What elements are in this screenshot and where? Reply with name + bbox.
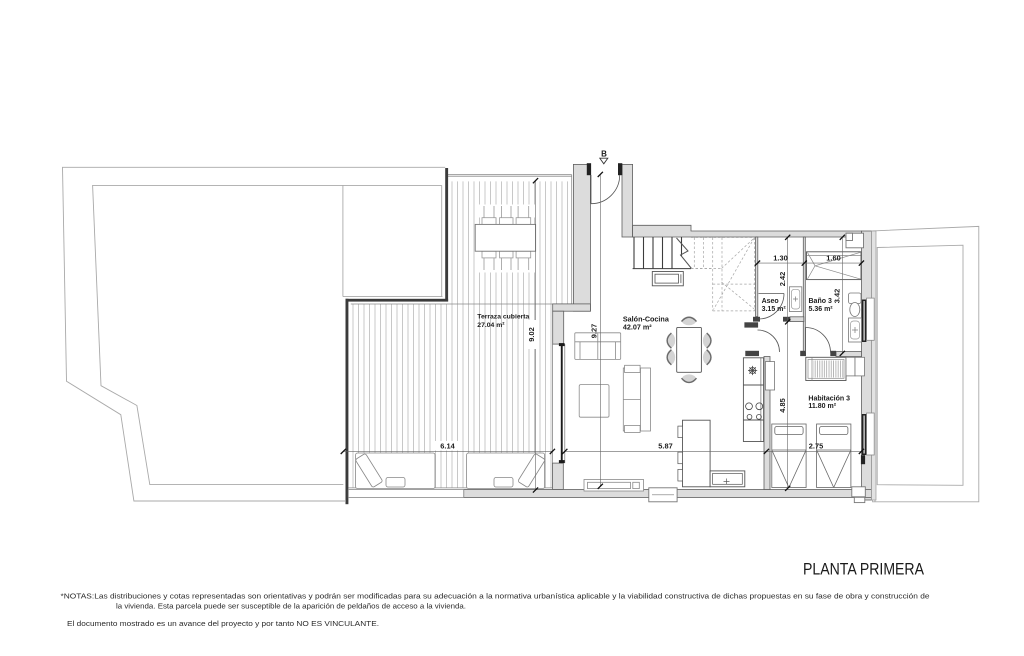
svg-text:9.27: 9.27: [590, 324, 599, 338]
svg-text:3.42: 3.42: [832, 289, 841, 303]
svg-text:*NOTAS:Las distribuciones y co: *NOTAS:Las distribuciones y cotas repres…: [61, 594, 930, 601]
svg-text:2.42: 2.42: [778, 272, 787, 286]
svg-text:9.02: 9.02: [527, 327, 536, 341]
svg-text:5.87: 5.87: [658, 442, 672, 451]
svg-text:El documento mostrado es un av: El documento mostrado es un avance del p…: [67, 621, 379, 628]
svg-text:Terraza cubierta: Terraza cubierta: [477, 313, 529, 320]
svg-text:Aseo: Aseo: [762, 298, 779, 305]
svg-text:Habitación 3: Habitación 3: [808, 395, 850, 402]
svg-text:4.85: 4.85: [778, 398, 787, 412]
svg-text:B: B: [601, 150, 607, 159]
svg-text:27.04 m²: 27.04 m²: [477, 322, 505, 329]
svg-text:2.75: 2.75: [809, 442, 823, 451]
svg-text:3.15 m²: 3.15 m²: [762, 306, 787, 313]
svg-text:5.36 m²: 5.36 m²: [809, 306, 834, 313]
svg-text:42.07 m²: 42.07 m²: [623, 323, 652, 332]
svg-text:1.60: 1.60: [826, 253, 840, 262]
svg-text:11.80 m²: 11.80 m²: [808, 403, 836, 410]
svg-text:Baño 3: Baño 3: [809, 298, 832, 305]
svg-text:PLANTA PRIMERA: PLANTA PRIMERA: [803, 561, 924, 579]
svg-text:1.30: 1.30: [773, 253, 787, 262]
svg-text:6.14: 6.14: [440, 442, 455, 451]
svg-text:la vivienda. Esta parcela pued: la vivienda. Esta parcela puede ser susc…: [116, 604, 466, 611]
